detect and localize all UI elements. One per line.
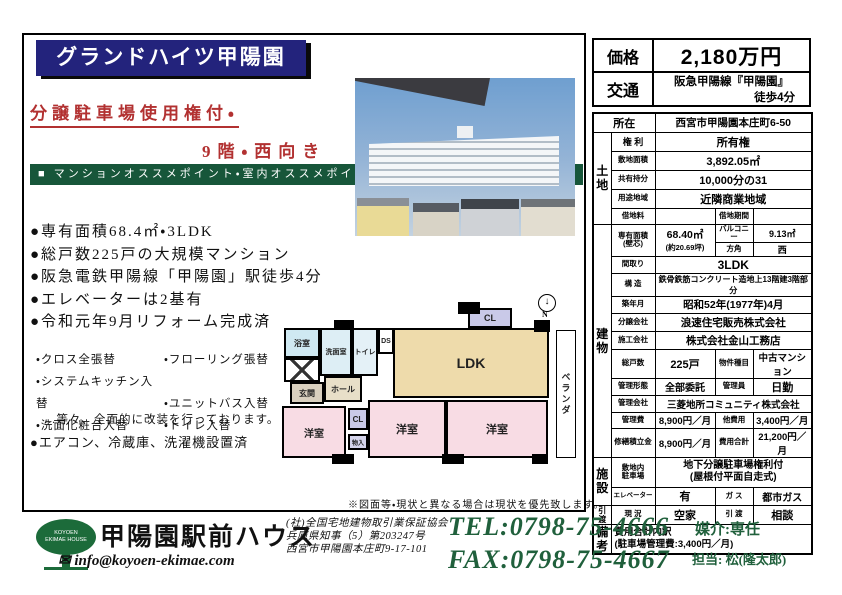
price-table: 価格 2,180万円 交通 阪急甲陽線『甲陽園』 徒歩4分	[592, 38, 811, 107]
layout-label: 間取り	[611, 256, 655, 273]
closet-low: CL	[348, 408, 368, 430]
room-hall: ホール	[324, 376, 362, 402]
floor-plan: 浴室 洗面室 トイレ DS CL LDK 玄関 ホール 洋室 CL 物入 洋室 …	[282, 296, 588, 496]
building-photo	[355, 78, 575, 236]
license-block: (社)全国宅地建物取引業保証協会 兵庫県知事（5）第203247号 西宮市甲陽園…	[286, 517, 448, 556]
balcony-label: バルコニー	[715, 224, 753, 242]
term-value	[753, 208, 812, 224]
builder-value: 株式会社金山工務店	[655, 331, 812, 349]
unit-area-label: 専有面積 (壁芯)	[611, 224, 655, 256]
photo-building	[369, 136, 559, 186]
structure-label: 構 造	[611, 273, 655, 296]
gas-value: 都市ガス	[753, 487, 812, 505]
rent-value	[655, 208, 715, 224]
total-fee-label: 費用合計	[715, 428, 753, 457]
term-label: 借地期間	[715, 208, 753, 224]
rent-label: 借地料	[611, 208, 655, 224]
reform-item: ・システムキッチン入替	[36, 371, 164, 415]
reserve-label: 修繕積立金	[611, 428, 655, 457]
feature-item: ●阪急電鉄甲陽線「甲陽園」駅徒歩4分	[30, 266, 323, 289]
direction-value: 西	[753, 242, 812, 256]
price-row: 価格 2,180万円	[593, 39, 810, 72]
price-label: 価格	[593, 39, 653, 72]
elevator-label: エレベーター	[611, 487, 655, 505]
unit-area-sqm: 68.40㎡	[657, 227, 714, 242]
share-value: 10,000分の31	[655, 170, 812, 189]
manager-label: 管理員	[715, 378, 753, 395]
room-western-1: 洋室	[282, 406, 346, 458]
delivery-value: 相談	[753, 505, 812, 524]
zone-value: 近隣商業地域	[655, 189, 812, 208]
pillar	[458, 302, 480, 314]
reform-item: ・クロス全張替	[36, 349, 164, 371]
access-value: 阪急甲陽線『甲陽園』 徒歩4分	[653, 72, 810, 106]
mgmt-form-value: 全部委託	[655, 378, 715, 395]
built-label: 築年月	[611, 296, 655, 313]
manager-value: 日勤	[753, 378, 812, 395]
gas-label: ガ ス	[715, 487, 753, 505]
type-label: 物件種目	[715, 349, 753, 378]
property-title: グランドハイツ甲陽園	[36, 40, 306, 76]
direction-label: 方角	[715, 242, 753, 256]
eave-shadow	[355, 78, 491, 106]
email-address: info@koyoen-ekimae.com	[71, 553, 235, 569]
access-line2: 徒歩4分	[654, 89, 809, 105]
reform-note: …等々、全面的に改装を行っております。	[44, 411, 279, 427]
real-estate-flyer: グランドハイツ甲陽園 分譲駐車場使用権付・ 9階・西向き ■ マンションオススメ…	[0, 0, 842, 595]
pillar	[532, 454, 548, 464]
developer-value: 浪速住宅販売株式会社	[655, 313, 812, 331]
detail-table: 所在 西宮市甲陽園本庄町6-50 土 地 権 利 所有権 敷地面積 3,892.…	[592, 112, 813, 555]
room-western-2: 洋室	[368, 400, 446, 458]
mgmt-co-value: 三菱地所コミュニティ株式会社	[655, 395, 812, 412]
room-toilet: トイレ	[352, 328, 378, 376]
land-area-value: 3,892.05㎡	[655, 151, 812, 170]
catch-copy-1: 分譲駐車場使用権付・	[30, 99, 239, 128]
feature-item: ●総戸数225戸の大規模マンション	[30, 244, 323, 267]
parking-value: 地下分譲駐車場権利付 (屋根付平面自走式)	[655, 457, 812, 487]
email-line: ✉ info@koyoen-ekimae.com	[58, 551, 235, 570]
land-area-label: 敷地面積	[611, 151, 655, 170]
access-row: 交通 阪急甲陽線『甲陽園』 徒歩4分	[593, 72, 810, 106]
photo-house	[461, 199, 519, 236]
built-value: 昭和52年(1977年)4月	[655, 296, 812, 313]
mgmt-co-label: 管理会社	[611, 395, 655, 412]
email-icon: ✉	[58, 553, 71, 569]
facility-group-header: 施 設	[593, 457, 611, 505]
license-association: (社)全国宅地建物取引業保証協会	[286, 517, 448, 530]
photo-rooftop	[457, 126, 473, 138]
mgmt-fee-value: 8,900円／月	[655, 412, 715, 428]
units-label: 総戸数	[611, 349, 655, 378]
location-label: 所在	[593, 113, 655, 132]
feature-item: ●エレベーターは2基有	[30, 289, 323, 312]
other-fee-value: 3,400円／月	[753, 412, 812, 428]
unit-area-value: 68.40㎡ (約20.69坪)	[655, 224, 715, 256]
crossed-box-icon	[284, 358, 320, 382]
building-group-header: 建 物	[593, 224, 611, 457]
balcony-value: 9.13㎡	[753, 224, 812, 242]
feature-list: ●専有面積68.4㎡・3LDK ●総戸数225戸の大規模マンション ●阪急電鉄甲…	[30, 221, 323, 334]
total-fee-value: 21,200円／月	[753, 428, 812, 457]
parking-label: 敷地内 駐車場	[611, 457, 655, 487]
feature-item: ●令和元年9月リフォーム完成済	[30, 311, 323, 334]
zone-label: 用途地域	[611, 189, 655, 208]
fax-number: FAX:0798-75-4667	[448, 545, 670, 575]
units-value: 225戸	[655, 349, 715, 378]
pillar	[442, 454, 464, 464]
reform-row: ・クロス全張替・フローリング張替	[36, 349, 292, 371]
photo-house	[521, 199, 575, 236]
agency-type: 媒介:専任	[695, 518, 760, 539]
access-line1: 阪急甲陽線『甲陽園』	[654, 73, 809, 89]
type-value: 中古マンション	[753, 349, 812, 378]
tel-number: TEL:0798-75-4666	[448, 512, 669, 542]
mgmt-form-label: 管理形態	[611, 378, 655, 395]
room-western-3: 洋室	[446, 400, 548, 458]
room-washroom: 洗面室	[320, 328, 352, 376]
price-value: 2,180万円	[653, 39, 810, 72]
room-ldk: LDK	[393, 328, 549, 398]
catch-copy-2: 9階・西向き	[202, 137, 326, 166]
room-entrance: 玄関	[290, 382, 324, 404]
floor-plan-note: ※図面等・現状と異なる場合は現状を優先致します。	[348, 496, 604, 511]
office-address: 西宮市甲陽園本庄町9-17-101	[286, 543, 448, 556]
photo-house	[357, 198, 409, 236]
layout-value: 3LDK	[655, 256, 812, 273]
access-label: 交通	[593, 72, 653, 106]
land-group-header: 土 地	[593, 132, 611, 224]
other-fee-label: 他費用	[715, 412, 753, 428]
reserve-value: 8,900円／月	[655, 428, 715, 457]
compass-north-label: N	[542, 310, 548, 319]
reform-item: ・フローリング張替	[164, 349, 292, 371]
location-value: 西宮市甲陽園本庄町6-50	[655, 113, 812, 132]
license-number: 兵庫県知事（5）第203247号	[286, 530, 448, 543]
photo-house	[413, 203, 459, 236]
developer-label: 分譲会社	[611, 313, 655, 331]
elevator-value: 有	[655, 487, 715, 505]
pillar	[332, 454, 354, 464]
veranda: ベランダ	[556, 330, 576, 458]
builder-label: 施工会社	[611, 331, 655, 349]
pillar	[534, 320, 550, 332]
pillar	[334, 320, 354, 330]
room-storage: 物入	[348, 434, 368, 450]
staff-name: 担当: 松(隆太郎)	[692, 549, 786, 568]
appliances-note: ●エアコン、冷蔵庫、洗濯機設置済	[30, 432, 248, 451]
room-bath: 浴室	[284, 328, 320, 358]
logo-tree-icon: KOYOEN EKIMAE HOUSE	[36, 519, 96, 555]
mgmt-fee-label: 管理費	[611, 412, 655, 428]
rights-value: 所有権	[655, 132, 812, 151]
structure-value: 鉄骨鉄筋コンクリート造地上13階建3階部分	[655, 273, 812, 296]
room-ds: DS	[378, 328, 394, 354]
feature-item: ●専有面積68.4㎡・3LDK	[30, 221, 323, 244]
rights-label: 権 利	[611, 132, 655, 151]
reform-row: ・システムキッチン入替・ユニットバス入替	[36, 371, 292, 415]
company-name: 甲陽園駅前ハウス	[100, 517, 316, 553]
unit-area-tsubo: (約20.69坪)	[657, 242, 714, 253]
share-label: 共有持分	[611, 170, 655, 189]
